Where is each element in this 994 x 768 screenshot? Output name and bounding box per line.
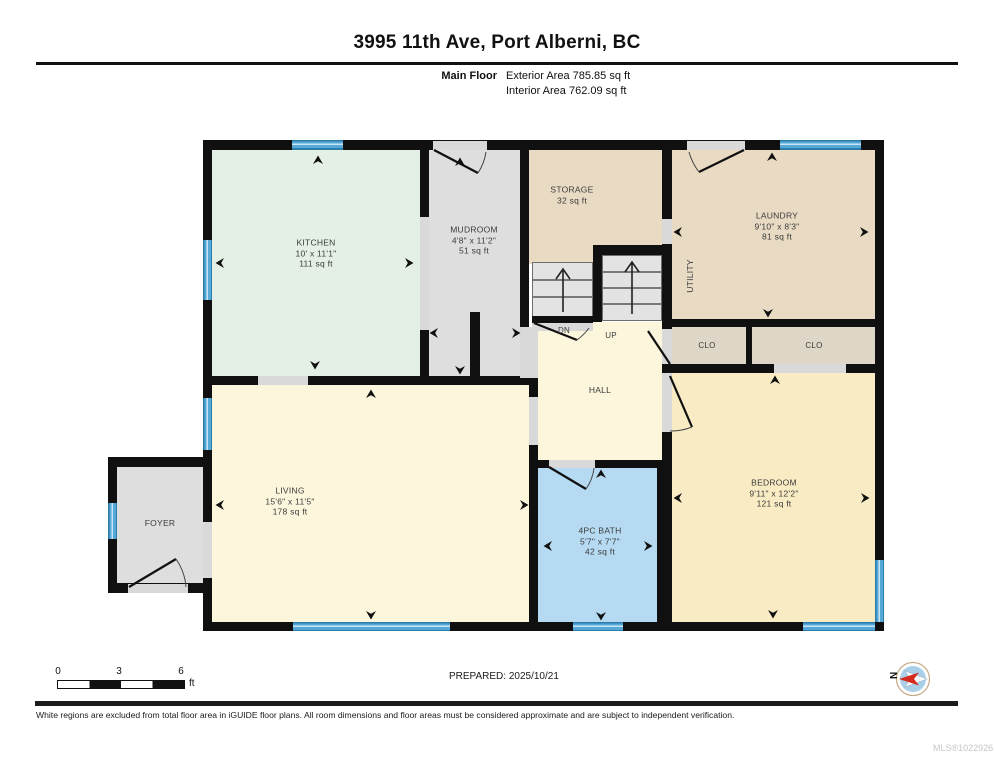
door-swing-arcs — [176, 152, 699, 587]
label-hall: HALL — [589, 385, 611, 396]
room-area: 111 sq ft — [296, 258, 337, 269]
room-name: CLO — [698, 341, 715, 352]
scale-tick-0: 0 — [55, 666, 61, 677]
room-dims: 9'11" x 12'2" — [749, 488, 798, 499]
room-dims: 10' x 11'1" — [296, 248, 337, 259]
room-name: 4PC BATH — [579, 525, 622, 536]
room-dims: 9'10" x 8'3" — [755, 221, 800, 232]
room-area: 178 sq ft — [265, 506, 314, 517]
label-living: LIVING 15'6" x 11'5" 178 sq ft — [265, 485, 314, 517]
label-stairs-up: UP — [605, 331, 617, 342]
floorplan-page: 3995 11th Ave, Port Alberni, BC Main Flo… — [0, 0, 994, 768]
room-name: UTILITY — [685, 259, 696, 292]
plan-annotations-overlay — [0, 0, 994, 768]
room-area: 81 sq ft — [755, 231, 800, 242]
disclaimer-text: White regions are excluded from total fl… — [36, 710, 956, 720]
compass-north-letter: N — [889, 672, 900, 679]
room-name: MUDROOM — [450, 224, 498, 235]
room-name: KITCHEN — [296, 237, 337, 248]
label-mudroom: MUDROOM 4'8" x 11'2" 51 sq ft — [450, 224, 498, 256]
room-dims: 4'8" x 11'2" — [450, 235, 498, 246]
room-dims: 5'7" x 7'7" — [579, 536, 622, 547]
room-name: HALL — [589, 385, 611, 396]
scale-unit: ft — [189, 678, 195, 689]
room-name: LAUNDRY — [755, 210, 800, 221]
stair-treads — [533, 272, 661, 304]
label-laundry: LAUNDRY 9'10" x 8'3" 81 sq ft — [755, 210, 800, 242]
label-closet-1: CLO — [698, 341, 715, 352]
scale-tick-6: 6 — [178, 666, 184, 677]
stairs-down-text: DN — [558, 326, 570, 337]
north-compass-icon: N — [884, 656, 942, 704]
label-closet-2: CLO — [805, 341, 822, 352]
room-area: 121 sq ft — [749, 498, 798, 509]
label-bedroom: BEDROOM 9'11" x 12'2" 121 sq ft — [749, 477, 798, 509]
label-storage: STORAGE 32 sq ft — [550, 185, 593, 206]
room-name: LIVING — [265, 485, 314, 496]
room-name: BEDROOM — [749, 477, 798, 488]
room-name: FOYER — [145, 518, 176, 529]
label-foyer: FOYER — [145, 518, 176, 529]
mls-number: MLS®1022926 — [933, 743, 993, 753]
scale-bar — [57, 680, 185, 689]
room-dims: 15'6" x 11'5" — [265, 496, 314, 507]
scale-tick-3: 3 — [116, 666, 122, 677]
room-name: CLO — [805, 341, 822, 352]
label-kitchen: KITCHEN 10' x 11'1" 111 sq ft — [296, 237, 337, 269]
door-leaves — [129, 150, 744, 587]
label-bath: 4PC BATH 5'7" x 7'7" 42 sq ft — [579, 525, 622, 557]
prepared-date: PREPARED: 2025/10/21 — [449, 671, 559, 682]
room-area: 32 sq ft — [550, 195, 593, 206]
label-utility: UTILITY — [685, 259, 696, 292]
room-area: 42 sq ft — [579, 546, 622, 557]
room-area: 51 sq ft — [450, 245, 498, 256]
footer-divider — [35, 701, 958, 706]
label-stairs-down: DN — [558, 326, 570, 337]
stairs-up-text: UP — [605, 331, 617, 342]
room-name: STORAGE — [550, 185, 593, 196]
